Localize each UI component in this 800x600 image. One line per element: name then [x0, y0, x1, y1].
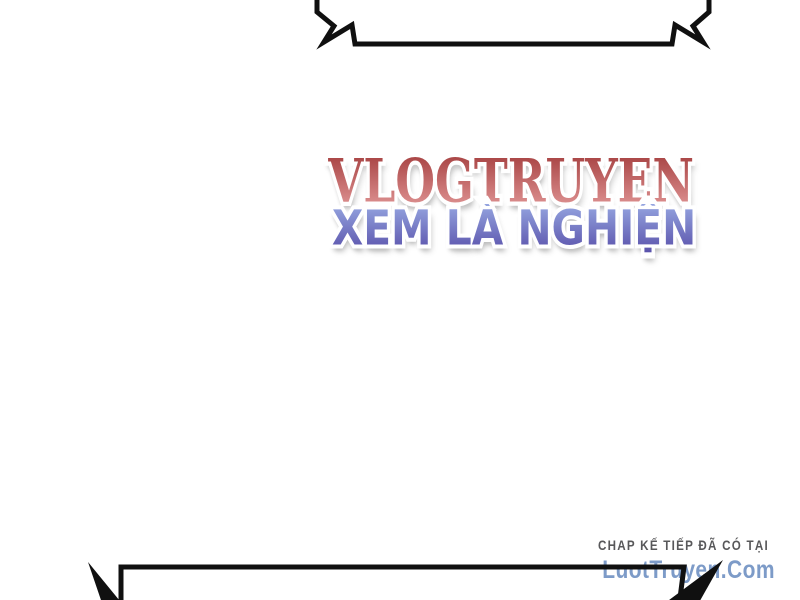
top-speech-bubble-outline	[317, 0, 709, 44]
watermark-subtitle-text: XEM LÀ NGHIỆN	[332, 204, 696, 252]
top-speech-bubble	[0, 0, 800, 70]
watermark-subtitle: XEM LÀ NGHIỆN XEM LÀ NGHIỆN	[332, 204, 696, 252]
next-chapter-credit: CHAP KẾ TIẾP ĐÃ CÓ TẠI LuotTruyen.Com	[563, 537, 775, 585]
next-chapter-heading: CHAP KẾ TIẾP ĐÃ CÓ TẠI	[598, 537, 769, 554]
source-site-name: LuotTruyen.Com	[597, 555, 775, 585]
bottom-bubble-left-spike	[88, 562, 124, 600]
comic-page: VLOGTRUYEN VLOGTRUYEN XEM LÀ NGHIỆN XEM …	[0, 0, 800, 600]
